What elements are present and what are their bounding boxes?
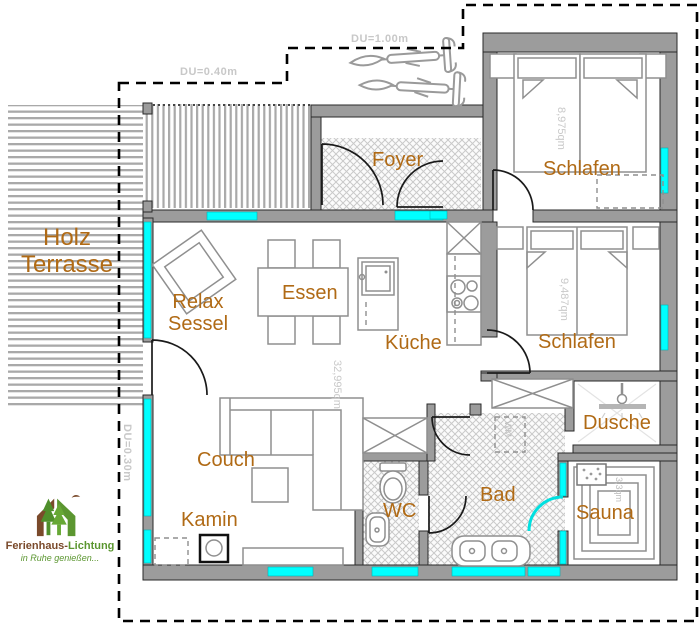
- logo-name: Ferienhaus-Lichtung: [4, 540, 116, 553]
- toilet-tank: [380, 463, 406, 471]
- pillow: [584, 58, 642, 78]
- bedroom-top-furniture: [490, 54, 666, 208]
- relax-label-line2: Sessel: [155, 313, 241, 335]
- nightstand: [490, 54, 516, 78]
- bicycle-icon: [359, 67, 466, 106]
- wood-box-dashed: [155, 538, 188, 565]
- pillow: [518, 58, 576, 78]
- deck-post: [143, 201, 152, 212]
- area-sauna: 3,3qm: [614, 477, 624, 502]
- kitchen-furniture: [358, 222, 481, 345]
- room-label-shower: Dusche: [583, 412, 651, 434]
- chair: [313, 240, 340, 268]
- room-label-bedroom-mid: Schlafen: [538, 331, 616, 353]
- nightstand: [497, 227, 523, 249]
- terrace-label-line2: Terrasse: [12, 251, 122, 278]
- chair: [313, 316, 340, 344]
- area-living: 32,995qm: [331, 360, 343, 409]
- nightstand: [633, 227, 659, 249]
- relax-label-line1: Relax: [155, 291, 241, 313]
- terrace-door-arc: [152, 340, 207, 395]
- floor-plan: Holz Terrasse Foyer Schlafen Schlafen Es…: [0, 0, 700, 629]
- room-label-sauna: Sauna: [576, 502, 634, 524]
- logo-tagline: in Ruhe genießen...: [4, 553, 116, 564]
- bedroom-top-door-arc: [493, 170, 533, 210]
- room-label-wc: WC: [383, 500, 416, 522]
- dim-roof-overhang-upper-left: DU=0.40m: [180, 66, 238, 78]
- bedroom-mid-furniture: [497, 227, 659, 335]
- dim-roof-overhang-top: DU=1.00m: [351, 33, 409, 45]
- logo-mark-icon: [28, 490, 92, 540]
- coffee-table: [252, 468, 288, 502]
- area-bedroom-mid: 9,487qm: [558, 278, 570, 321]
- room-label-bath: Bad: [480, 484, 516, 506]
- pillow: [531, 231, 573, 249]
- room-label-bedroom-top: Schlafen: [543, 158, 621, 180]
- room-label-fireplace: Kamin: [181, 509, 238, 531]
- deck-post: [143, 103, 152, 114]
- dim-roof-overhang-left: DU=0.30m: [121, 424, 133, 482]
- chair: [268, 316, 295, 344]
- area-bedroom-top: 8,975qm: [555, 107, 567, 150]
- room-label-relax: Relax Sessel: [155, 291, 241, 335]
- fireplace-stove: [200, 535, 228, 562]
- chair: [268, 240, 295, 268]
- sink-unit: [358, 258, 398, 330]
- washing-machine-label: WM: [503, 421, 513, 437]
- logo-name-part2: Lichtung: [68, 540, 114, 552]
- counter: [447, 254, 481, 345]
- logo: Ferienhaus-Lichtung in Ruhe genießen...: [4, 490, 116, 564]
- sideboard: [243, 548, 343, 565]
- room-label-kitchen: Küche: [385, 332, 442, 354]
- logo-name-part1: Ferienhaus-: [6, 540, 68, 552]
- room-label-foyer: Foyer: [372, 149, 423, 171]
- terrace-label-line1: Holz: [12, 224, 122, 251]
- room-label-couch: Couch: [197, 449, 255, 471]
- vanity: [452, 536, 530, 566]
- pillow: [581, 231, 623, 249]
- room-label-dining: Essen: [282, 282, 338, 304]
- room-label-terrace: Holz Terrasse: [12, 224, 122, 278]
